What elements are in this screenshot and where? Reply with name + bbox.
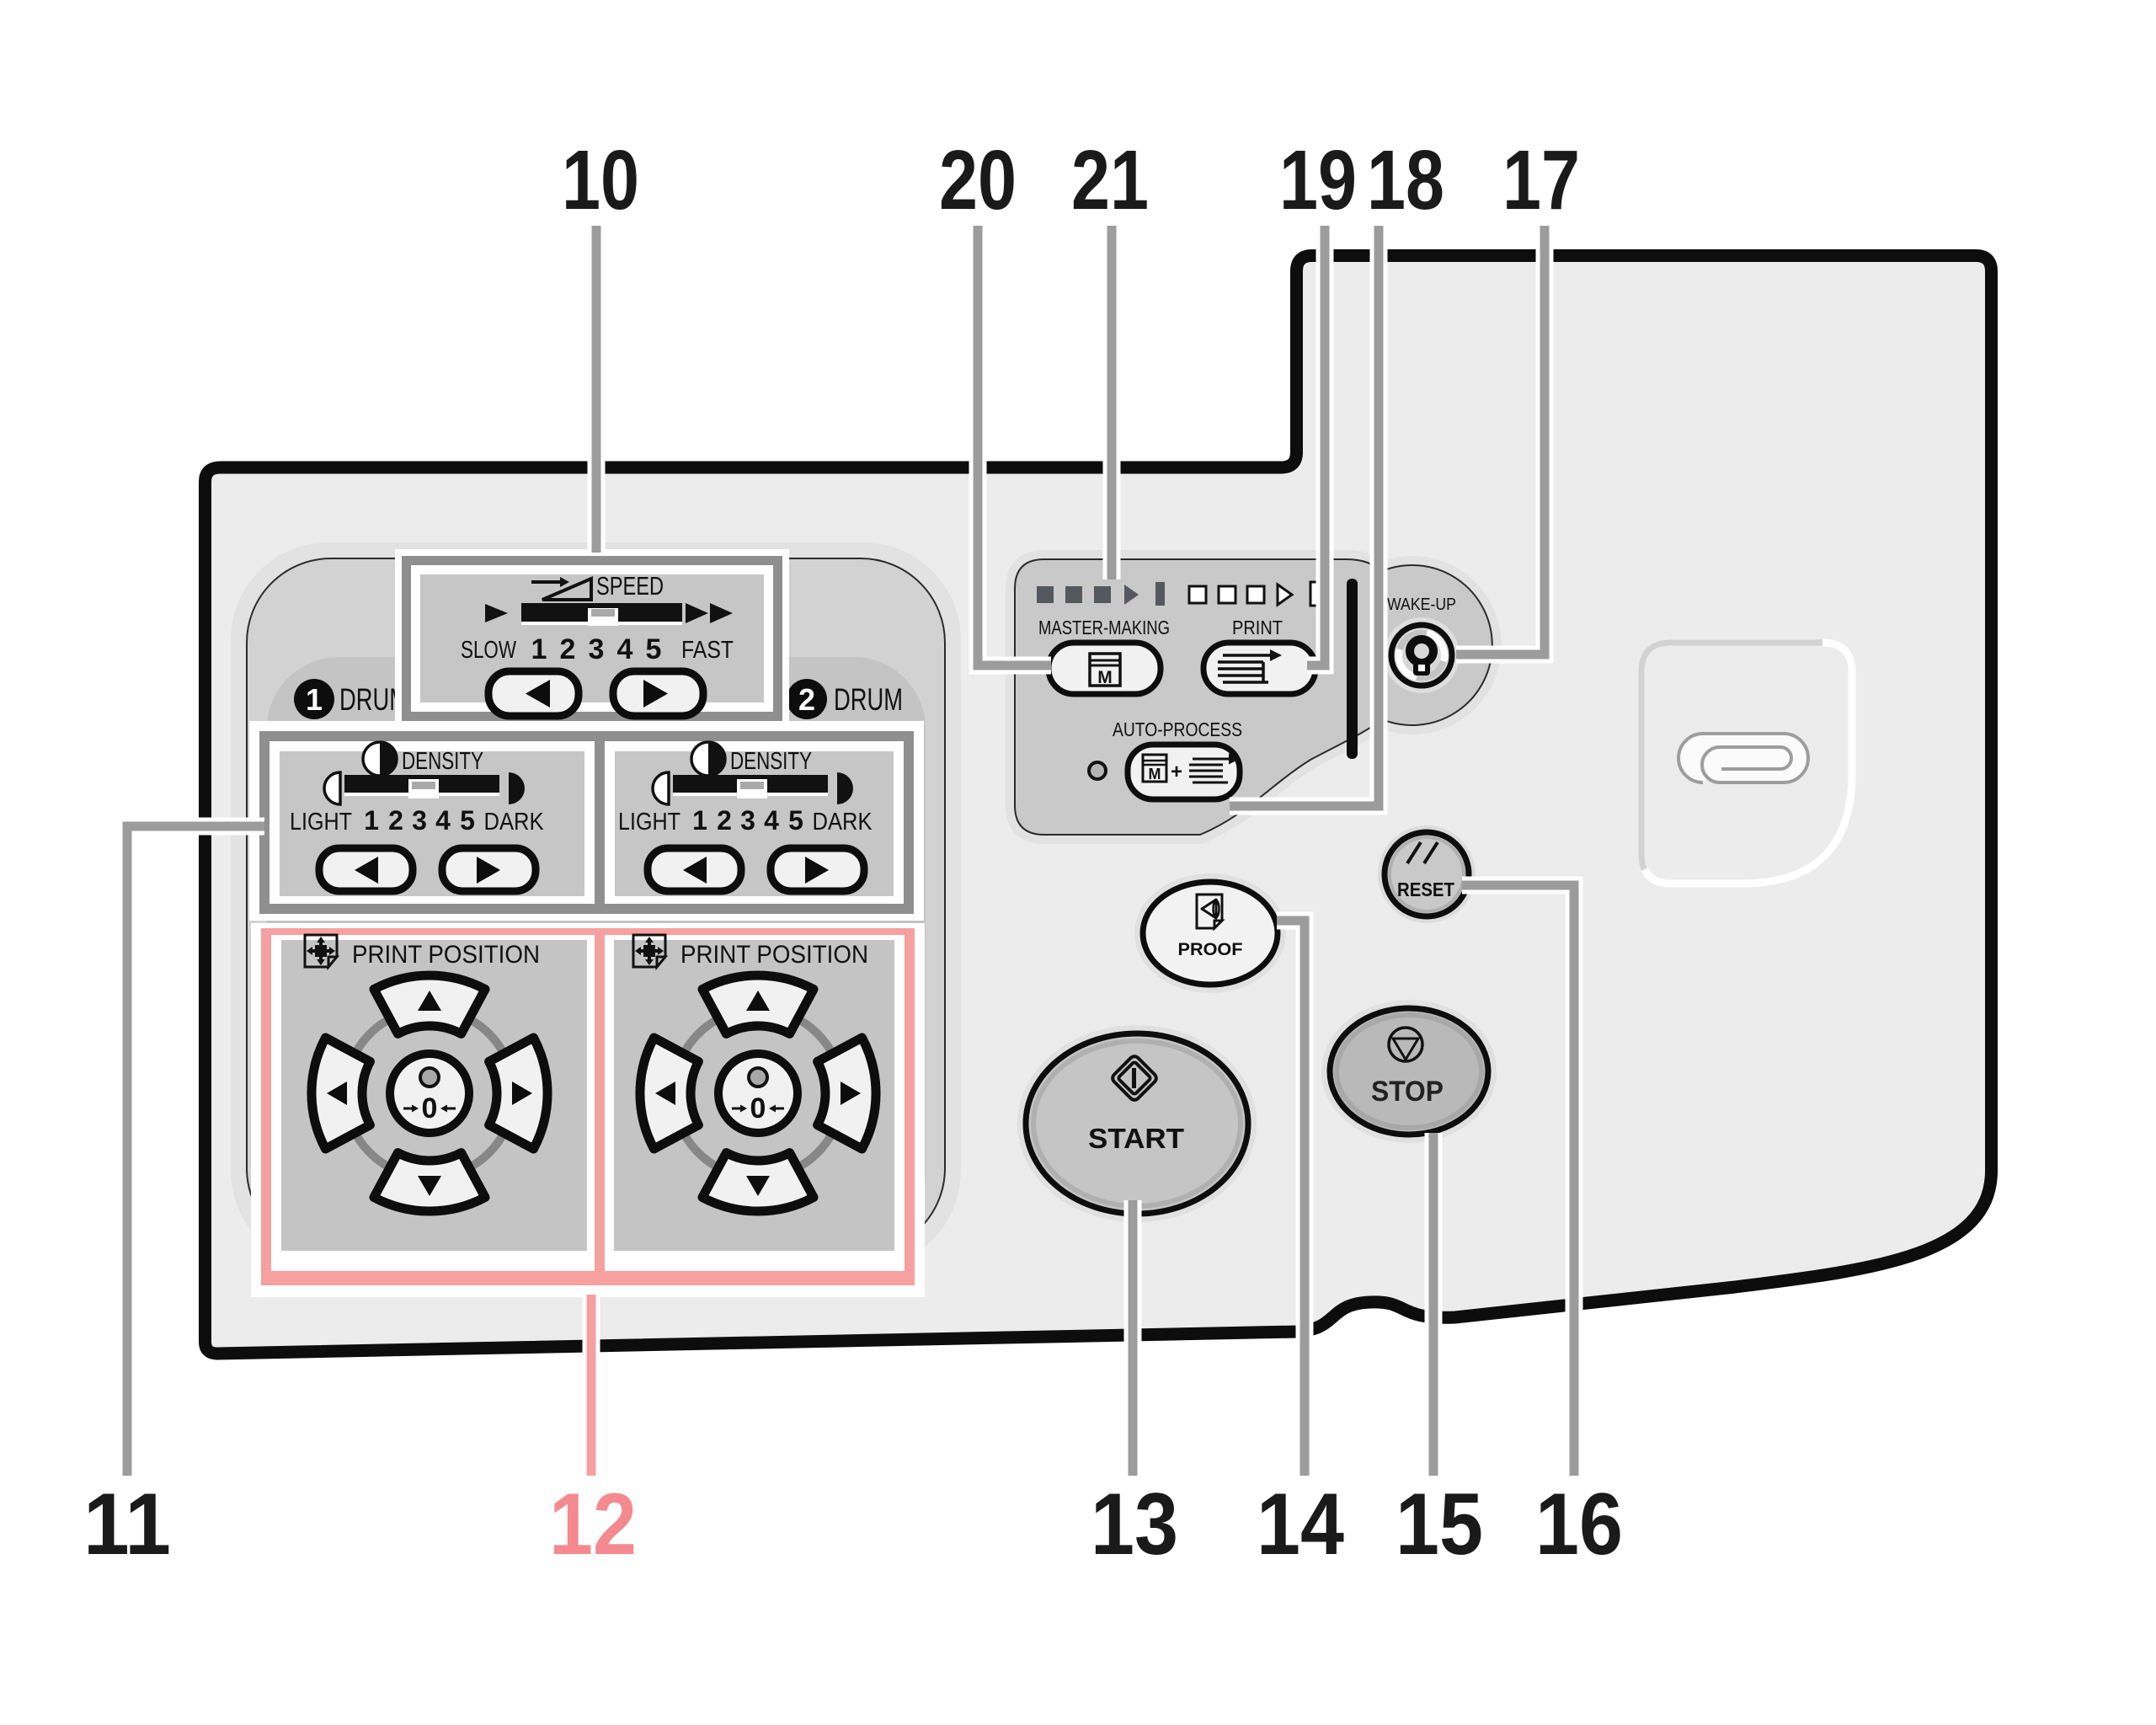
svg-text:AUTO-PROCESS: AUTO-PROCESS: [1113, 718, 1242, 740]
svg-text:3: 3: [740, 805, 755, 836]
svg-text:STOP: STOP: [1371, 1076, 1444, 1108]
svg-text:10: 10: [562, 133, 639, 227]
svg-text:DARK: DARK: [813, 809, 873, 836]
svg-text:1: 1: [306, 682, 323, 717]
svg-text:18: 18: [1367, 133, 1444, 227]
svg-text:LIGHT: LIGHT: [618, 809, 680, 836]
svg-text:FAST: FAST: [681, 637, 734, 664]
svg-text:4: 4: [435, 805, 451, 836]
svg-text:4: 4: [617, 633, 633, 665]
svg-text:2: 2: [560, 633, 576, 665]
svg-text:PRINT: PRINT: [1232, 617, 1283, 638]
svg-text:19: 19: [1279, 133, 1357, 227]
svg-text:2: 2: [798, 682, 815, 717]
svg-text:20: 20: [939, 133, 1017, 227]
svg-text:5: 5: [460, 805, 475, 836]
svg-text:1: 1: [364, 805, 379, 836]
svg-text:3: 3: [589, 633, 605, 665]
svg-text:17: 17: [1502, 133, 1580, 227]
svg-text:DARK: DARK: [484, 809, 545, 836]
svg-text:2: 2: [388, 805, 403, 836]
svg-text:SPEED: SPEED: [596, 571, 664, 601]
svg-text:16: 16: [1535, 1476, 1623, 1573]
svg-text:15: 15: [1396, 1476, 1483, 1573]
svg-text:12: 12: [549, 1476, 637, 1573]
svg-text:MASTER-MAKING: MASTER-MAKING: [1038, 617, 1170, 638]
svg-text:DENSITY: DENSITY: [730, 748, 812, 775]
svg-text:4: 4: [764, 805, 779, 836]
svg-text:PRINT POSITION: PRINT POSITION: [680, 941, 868, 969]
svg-text:PROOF: PROOF: [1178, 940, 1243, 959]
svg-text:WAKE-UP: WAKE-UP: [1387, 595, 1456, 614]
svg-text:LIGHT: LIGHT: [290, 809, 352, 836]
svg-text:DENSITY: DENSITY: [402, 748, 483, 775]
svg-text:+: +: [1171, 761, 1182, 783]
svg-text:13: 13: [1091, 1476, 1178, 1573]
svg-text:14: 14: [1257, 1476, 1344, 1573]
svg-text:5: 5: [788, 805, 803, 836]
svg-text:PRINT POSITION: PRINT POSITION: [352, 941, 540, 969]
svg-text:M: M: [1149, 766, 1161, 782]
svg-text:2: 2: [717, 805, 732, 836]
svg-text:RESET: RESET: [1397, 879, 1454, 900]
svg-text:21: 21: [1071, 133, 1149, 227]
svg-text:SLOW: SLOW: [461, 637, 516, 664]
svg-text:5: 5: [646, 633, 662, 665]
svg-text:1: 1: [531, 633, 547, 665]
svg-text:START: START: [1088, 1123, 1184, 1154]
svg-text:1: 1: [692, 805, 707, 836]
svg-text:DRUM: DRUM: [834, 682, 903, 717]
svg-text:3: 3: [412, 805, 427, 836]
svg-text:M: M: [1097, 668, 1113, 687]
svg-text:11: 11: [83, 1476, 171, 1573]
